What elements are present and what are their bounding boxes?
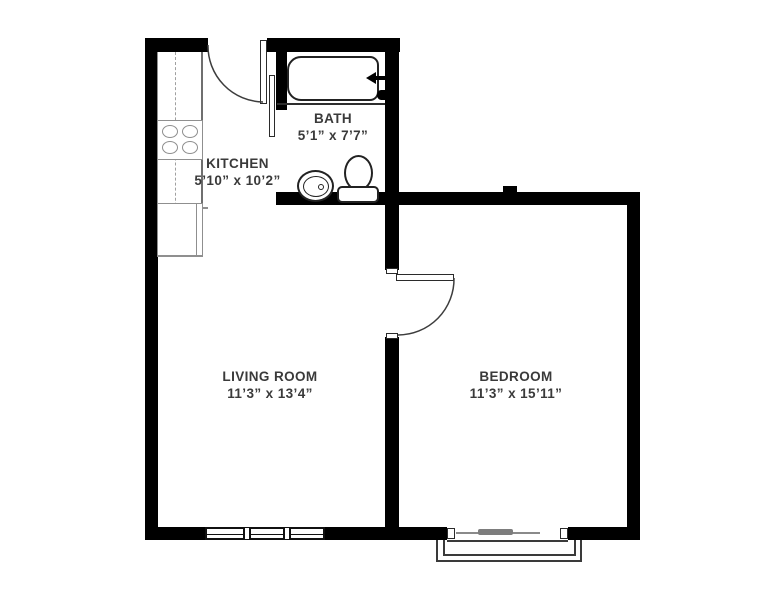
floor-plan: BATH 5’1” x 7’7” KITCHEN 5’10” x 10’2” L… (0, 0, 774, 599)
wall-bedroom-top-bump (503, 186, 517, 193)
window-mullion (283, 528, 291, 539)
wall-top-bath (267, 38, 400, 52)
tub-deck-line (277, 103, 385, 105)
living-room-window (205, 527, 325, 540)
tub-drain-icon (377, 90, 385, 100)
bath-name: BATH (258, 110, 408, 127)
kitchen-dimensions: 5’10” x 10’2” (160, 172, 315, 189)
toilet-tank (337, 186, 379, 203)
wall-divider-upper (385, 52, 399, 270)
wall-right (627, 192, 640, 540)
bath-label: BATH 5’1” x 7’7” (258, 110, 408, 144)
wall-bottom-middle (325, 527, 447, 540)
burner-icon (182, 141, 198, 154)
window-centerline (207, 534, 323, 535)
living-room-name: LIVING ROOM (190, 368, 350, 385)
bath-dimensions: 5’1” x 7’7” (258, 127, 408, 144)
wall-bottom-left (145, 527, 205, 540)
stove (157, 120, 203, 160)
window-mullion (243, 528, 251, 539)
bedroom-door (396, 274, 454, 281)
tub-faucet-icon (366, 72, 376, 84)
wall-bath-left-stub (276, 52, 287, 110)
burner-icon (162, 125, 178, 138)
refrigerator-inner-edge (196, 203, 197, 256)
wall-bottom-right (568, 527, 640, 540)
living-room-label: LIVING ROOM 11’3” x 13’4” (190, 368, 350, 402)
bedroom-door-jamb-bottom (386, 333, 398, 339)
sink-drain-icon (318, 184, 324, 190)
burner-icon (182, 125, 198, 138)
patio-jamb-left (447, 528, 455, 539)
wall-divider-lower (385, 337, 399, 540)
balcony-frame-inner (443, 540, 576, 556)
bedroom-door-arc (398, 278, 454, 335)
kitchen-name: KITCHEN (160, 155, 315, 172)
kitchen-label: KITCHEN 5’10” x 10’2” (160, 155, 315, 189)
sliding-door-panel (478, 529, 513, 535)
tub-faucet-stem (376, 76, 385, 80)
wall-bedroom-top (399, 192, 640, 205)
burner-icon (162, 141, 178, 154)
bedroom-dimensions: 11’3” x 15’11” (436, 385, 596, 402)
bedroom-label: BEDROOM 11’3” x 15’11” (436, 368, 596, 402)
refrigerator-tick (203, 207, 208, 209)
patio-jamb-right (560, 528, 568, 539)
bedroom-name: BEDROOM (436, 368, 596, 385)
living-room-dimensions: 11’3” x 13’4” (190, 385, 350, 402)
entry-door (260, 40, 267, 104)
entry-door-arc (208, 45, 263, 102)
